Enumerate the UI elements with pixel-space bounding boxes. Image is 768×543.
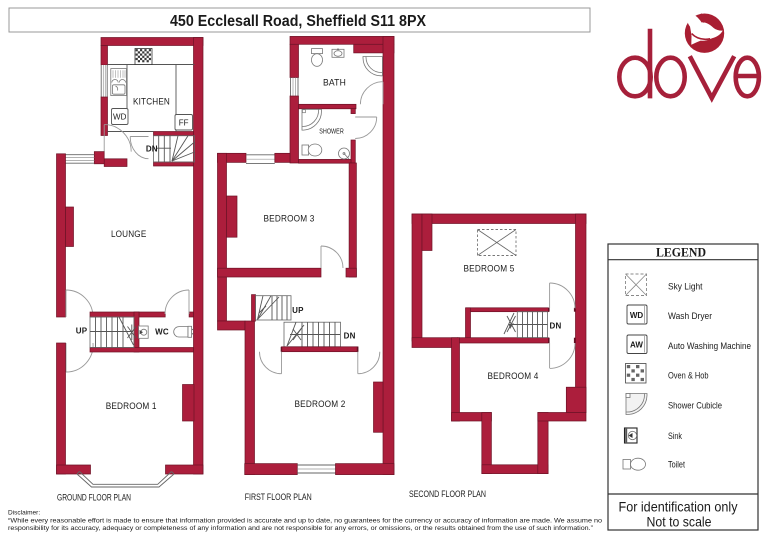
svg-text:KITCHEN: KITCHEN [133, 96, 170, 107]
svg-text:BEDROOM 5: BEDROOM 5 [464, 264, 515, 275]
svg-text:GROUND FLOOR PLAN: GROUND FLOOR PLAN [57, 492, 131, 502]
svg-text:BEDROOM 4: BEDROOM 4 [488, 371, 539, 382]
svg-text:AW: AW [630, 341, 643, 350]
svg-text:LOUNGE: LOUNGE [111, 229, 147, 240]
svg-text:Not to scale: Not to scale [647, 514, 712, 530]
svg-text:Shower Cubicle: Shower Cubicle [668, 401, 722, 412]
svg-text:“While every reasonable effort: “While every reasonable effort is made t… [8, 517, 602, 524]
svg-text:Auto Washing Machine: Auto Washing Machine [668, 341, 751, 352]
svg-text:BEDROOM 1: BEDROOM 1 [106, 401, 157, 412]
svg-text:Disclaimer:: Disclaimer: [8, 510, 40, 517]
svg-text:FIRST FLOOR PLAN: FIRST FLOOR PLAN [245, 492, 312, 502]
svg-text:WD: WD [630, 311, 644, 320]
svg-text:WD: WD [113, 113, 127, 122]
svg-text:SHOWER: SHOWER [319, 127, 344, 136]
svg-text:BATH: BATH [323, 77, 346, 88]
svg-text:450 Ecclesall Road, Sheffield: 450 Ecclesall Road, Sheffield S11 8PX [170, 13, 427, 30]
svg-text:BEDROOM 3: BEDROOM 3 [264, 213, 315, 224]
svg-text:Sky Light: Sky Light [668, 282, 703, 293]
svg-text:WC: WC [155, 328, 169, 337]
svg-text:Toilet: Toilet [668, 460, 685, 471]
svg-text:BEDROOM 2: BEDROOM 2 [295, 399, 346, 410]
svg-text:UP: UP [292, 306, 304, 315]
svg-text:DN: DN [344, 331, 356, 340]
svg-text:Oven & Hob: Oven & Hob [668, 371, 709, 382]
svg-text:Sink: Sink [668, 431, 682, 442]
svg-text:SECOND FLOOR PLAN: SECOND FLOOR PLAN [409, 489, 486, 499]
svg-text:FF: FF [179, 119, 189, 128]
svg-text:Wash Dryer: Wash Dryer [668, 311, 712, 322]
svg-text:UP: UP [76, 326, 88, 335]
svg-text:responsibility for its accurac: responsibility for its accuracy, adequac… [8, 525, 593, 532]
svg-text:For identification only: For identification only [619, 499, 738, 515]
svg-text:LEGEND: LEGEND [656, 244, 706, 259]
svg-text:DN: DN [550, 322, 562, 331]
svg-text:DN: DN [146, 144, 158, 153]
